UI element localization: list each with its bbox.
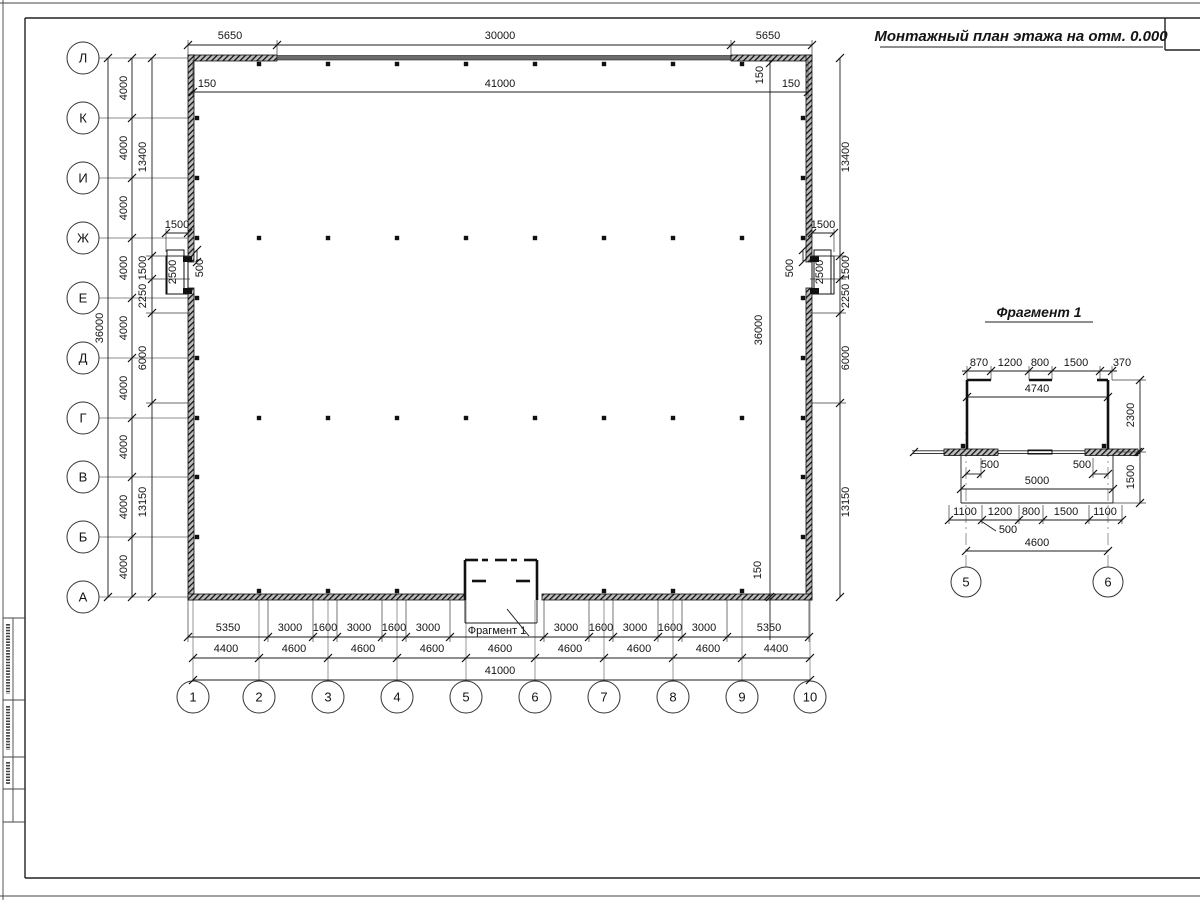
- row-axis-Б-label: Б: [79, 530, 88, 545]
- column-mark: [395, 416, 399, 420]
- row-axis-Г-label: Г: [79, 411, 86, 426]
- column-mark: [801, 116, 805, 120]
- column-mark: [395, 62, 399, 66]
- dim-label: 1500: [1064, 357, 1088, 369]
- dim-label: 3000: [692, 622, 716, 634]
- dim-label: 4000: [118, 256, 130, 280]
- dim-label: 150: [752, 561, 764, 579]
- dim-label: 500: [194, 259, 206, 277]
- dim-label: 13150: [137, 487, 149, 518]
- dim-label: 36000: [753, 315, 765, 346]
- column-mark: [740, 236, 744, 240]
- dim-label: 2250: [840, 284, 852, 308]
- row-axis-Ж-label: Ж: [77, 231, 89, 246]
- dim-label: 4600: [696, 643, 720, 655]
- dim-label: 3000: [623, 622, 647, 634]
- col-axis-1-label: 1: [189, 690, 196, 705]
- dim-label: 4000: [118, 196, 130, 220]
- row-axis-Л-label: Л: [79, 51, 88, 66]
- row-axis-Д-label: Д: [79, 351, 88, 366]
- column-mark: [195, 535, 199, 539]
- column-mark: [671, 589, 675, 593]
- dim-label: 500: [999, 524, 1017, 536]
- dim-label: 30000: [485, 30, 516, 42]
- column-mark: [326, 416, 330, 420]
- dim-label: 1500: [811, 219, 835, 231]
- column-mark: [1102, 444, 1106, 448]
- row-axis-В-label: В: [79, 470, 88, 485]
- column-mark: [195, 475, 199, 479]
- row-axis-И-label: И: [78, 171, 87, 186]
- dim-label: 13400: [840, 142, 852, 173]
- plan-dimension-lines: [108, 45, 840, 680]
- col-axis-10-label: 10: [803, 690, 817, 705]
- fragment-title-text: Фрагмент 1: [996, 304, 1081, 320]
- dim-label: 6000: [137, 346, 149, 370]
- column-mark: [195, 116, 199, 120]
- column-mark: [740, 62, 744, 66]
- sheet-frame: [0, 0, 1200, 900]
- dim-label: 1500: [1125, 465, 1137, 489]
- dim-label: 1100: [1093, 506, 1117, 518]
- column-mark: [533, 62, 537, 66]
- column-mark: [602, 236, 606, 240]
- dim-label: 4000: [118, 136, 130, 160]
- column-mark: [961, 444, 965, 448]
- drawing-title: Монтажный план этажа на отм. 0.000: [874, 28, 1168, 47]
- dim-label: 500: [1073, 459, 1091, 471]
- dim-label: 4400: [764, 643, 788, 655]
- dim-label: 1500: [137, 256, 149, 280]
- column-mark: [395, 236, 399, 240]
- column-mark: [602, 589, 606, 593]
- column-mark: [602, 62, 606, 66]
- column-mark: [801, 236, 805, 240]
- column-mark: [801, 475, 805, 479]
- row-axis-А-label: А: [79, 590, 88, 605]
- dim-label: 4600: [282, 643, 306, 655]
- dim-label: 5350: [216, 622, 240, 634]
- axis-grid: ЛКИЖЕДГВБА1234567891056: [67, 42, 1123, 713]
- dim-label: 4600: [1025, 537, 1049, 549]
- column-mark: [464, 62, 468, 66]
- dim-label: 1600: [313, 622, 337, 634]
- column-mark: [801, 176, 805, 180]
- column-mark: [257, 62, 261, 66]
- dim-label: 500: [784, 259, 796, 277]
- dim-label: 41000: [485, 665, 516, 677]
- dim-label: 6000: [840, 346, 852, 370]
- dim-label: 1600: [589, 622, 613, 634]
- column-mark: [257, 589, 261, 593]
- dim-label: 5000: [1025, 475, 1049, 487]
- dim-label: 4000: [118, 435, 130, 459]
- col-axis-2-label: 2: [255, 690, 262, 705]
- dim-label: 4600: [351, 643, 375, 655]
- dim-label: 5650: [756, 30, 780, 42]
- dim-label: 150: [198, 78, 216, 90]
- dim-label: 4400: [214, 643, 238, 655]
- dim-label: 4600: [420, 643, 444, 655]
- column-mark: [395, 589, 399, 593]
- column-mark: [464, 236, 468, 240]
- fragment-axis-6-label: 6: [1104, 575, 1111, 590]
- column-mark: [533, 236, 537, 240]
- fragment-callout-label: Фрагмент 1: [468, 625, 527, 637]
- column-mark: [740, 589, 744, 593]
- column-mark: [801, 356, 805, 360]
- col-axis-9-label: 9: [738, 690, 745, 705]
- column-mark: [801, 535, 805, 539]
- dim-label: 13150: [840, 487, 852, 518]
- dim-label: 3000: [278, 622, 302, 634]
- dim-label: 4600: [558, 643, 582, 655]
- col-axis-6-label: 6: [531, 690, 538, 705]
- row-axis-К-label: К: [79, 111, 87, 126]
- column-mark: [464, 416, 468, 420]
- dim-label: 2500: [167, 260, 179, 284]
- col-axis-4-label: 4: [393, 690, 400, 705]
- dim-label: 5350: [757, 622, 781, 634]
- dim-label: 3000: [416, 622, 440, 634]
- column-mark: [195, 236, 199, 240]
- column-mark: [195, 416, 199, 420]
- dim-label: 150: [782, 78, 800, 90]
- column-mark: [801, 296, 805, 300]
- column-mark: [257, 236, 261, 240]
- dim-label: 500: [981, 459, 999, 471]
- plan-extension-lines: [146, 40, 846, 642]
- dim-label: 3000: [554, 622, 578, 634]
- dim-label: 800: [1031, 357, 1049, 369]
- dim-label: 3000: [347, 622, 371, 634]
- main-title: Монтажный план этажа на отм. 0.000: [874, 28, 1168, 45]
- column-mark: [195, 296, 199, 300]
- column-mark: [671, 416, 675, 420]
- dim-label: 4000: [118, 316, 130, 340]
- drawing-canvas: ЛКИЖЕДГВБА1234567891056: [0, 0, 1200, 900]
- column-mark: [326, 589, 330, 593]
- drawing-sheet: ЛКИЖЕДГВБА1234567891056: [0, 0, 1200, 900]
- dim-label: 4600: [627, 643, 651, 655]
- fragment-500-leader: [981, 521, 996, 531]
- column-mark: [195, 176, 199, 180]
- col-axis-3-label: 3: [324, 690, 331, 705]
- dim-label: 1500: [1054, 506, 1078, 518]
- dim-label: 4000: [118, 495, 130, 519]
- column-mark: [257, 416, 261, 420]
- dim-label: 4740: [1025, 383, 1049, 395]
- dim-label: 1200: [988, 506, 1012, 518]
- dim-label: 4000: [118, 76, 130, 100]
- dim-label: 1500: [165, 219, 189, 231]
- column-mark: [326, 62, 330, 66]
- dim-label: 2250: [137, 284, 149, 308]
- dim-label: 13400: [137, 142, 149, 173]
- dim-label: 1500: [840, 256, 852, 280]
- dim-label: 4000: [118, 555, 130, 579]
- plan-walls: [188, 55, 812, 600]
- row-axis-Е-label: Е: [79, 291, 88, 306]
- dim-label: 2300: [1125, 403, 1137, 427]
- dim-label: 870: [970, 357, 988, 369]
- column-mark: [533, 416, 537, 420]
- column-mark: [671, 236, 675, 240]
- dim-label: 1600: [658, 622, 682, 634]
- dim-label: 1600: [382, 622, 406, 634]
- column-mark: [671, 62, 675, 66]
- fragment-title: Фрагмент 1: [985, 304, 1093, 322]
- col-axis-5-label: 5: [462, 690, 469, 705]
- dim-label: 370: [1113, 357, 1131, 369]
- column-mark: [195, 356, 199, 360]
- dim-label: 36000: [94, 313, 106, 344]
- fragment-axis-5-label: 5: [962, 575, 969, 590]
- col-axis-7-label: 7: [600, 690, 607, 705]
- dim-label: 800: [1022, 506, 1040, 518]
- column-mark: [602, 416, 606, 420]
- dim-label: 2500: [814, 260, 826, 284]
- dim-label: 1200: [998, 357, 1022, 369]
- dim-label: 5650: [218, 30, 242, 42]
- dim-label: 41000: [485, 78, 516, 90]
- col-axis-8-label: 8: [669, 690, 676, 705]
- tick-mark: [910, 448, 918, 456]
- title-block-strip: [3, 618, 25, 822]
- column-mark: [740, 416, 744, 420]
- dim-label: 4600: [488, 643, 512, 655]
- column-mark: [801, 416, 805, 420]
- dim-label: 1100: [953, 506, 977, 518]
- column-mark: [326, 236, 330, 240]
- dim-label: 4000: [118, 376, 130, 400]
- dim-label: 150: [754, 66, 766, 84]
